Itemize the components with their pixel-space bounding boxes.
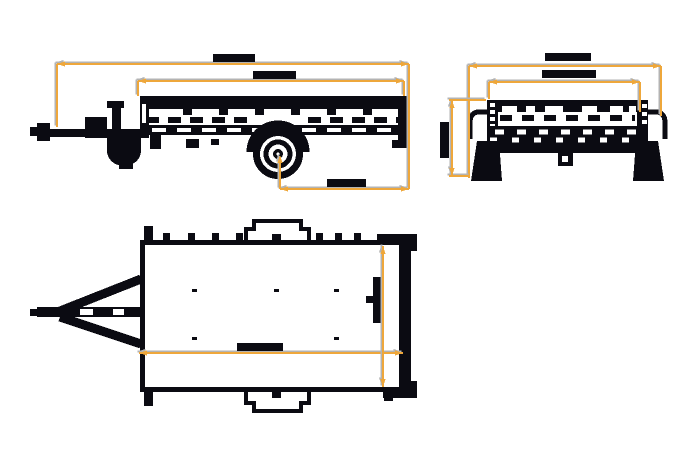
drawing-canvas[interactable] [0, 0, 700, 467]
dim-side-bed-length[interactable] [137, 71, 405, 96]
dim-front-overall-width-label-blob [545, 53, 591, 61]
dim-front-box-width-label-blob [542, 70, 596, 78]
side-stake-tab [291, 109, 300, 115]
top-inner-bar [373, 277, 381, 323]
front-pocket-hole [642, 104, 647, 108]
top-corner-tab [144, 226, 153, 240]
front-left-fender [470, 112, 488, 139]
front-rail-notch [629, 106, 636, 112]
front-jockey-wheel [440, 122, 449, 158]
front-center-stub-hole [562, 156, 568, 162]
top-inner-tick [366, 296, 373, 303]
front-rail-notch [502, 106, 517, 112]
side-stake-tab [255, 109, 264, 115]
front-right-wheel [633, 141, 664, 181]
front-pocket-hole [490, 117, 495, 121]
front-rail-notch [582, 106, 597, 112]
top-corner-nub [405, 381, 417, 398]
side-front-wall-slot [142, 104, 146, 123]
top-stake-tab [188, 233, 195, 240]
dim-side-bed-length-label-blob [253, 71, 296, 79]
side-support-leg [211, 139, 219, 145]
side-stake-tab [183, 109, 192, 115]
top-fender-notch [272, 392, 281, 398]
side-stake-tab [327, 109, 336, 115]
front-rail-notch [526, 106, 535, 112]
front-right-fender [647, 112, 665, 139]
top-corner-nub [407, 234, 417, 251]
top-stake-tab [163, 233, 170, 240]
top-floor-mark [192, 289, 197, 292]
top-stake-tab [316, 233, 323, 240]
front-rail-notch [545, 106, 563, 112]
side-top-rail [140, 96, 410, 109]
side-stake-tab [363, 109, 372, 115]
top-rear-tab [384, 392, 393, 401]
dim-side-overall-length-label-blob [213, 54, 255, 62]
top-stake-tab [354, 233, 361, 240]
front-pocket-hole [490, 103, 495, 107]
top-rear-edge [140, 387, 413, 392]
top-stake-tab [212, 233, 219, 240]
side-support-leg [186, 139, 199, 148]
side-jockey-wheel [107, 136, 141, 166]
front-left-wheel [471, 141, 502, 181]
top-left-edge [140, 240, 145, 392]
top-view[interactable] [30, 221, 417, 411]
top-floor-mark [334, 289, 339, 292]
top-drawbar-gap [113, 309, 124, 315]
side-view[interactable] [30, 96, 410, 176]
side-stake-tab [219, 109, 228, 115]
front-pocket-hole [642, 112, 647, 116]
front-view[interactable] [440, 100, 665, 181]
top-front-edge [140, 240, 413, 245]
top-corner-tab [144, 392, 153, 406]
top-stake-tab [236, 233, 243, 240]
top-stake-tab [335, 233, 342, 240]
top-floor-mark [192, 337, 197, 340]
side-jockey-foot [119, 162, 133, 169]
front-pocket-hole [490, 110, 495, 114]
top-tongue-arm-lower [60, 317, 141, 344]
top-hitch-tip [30, 309, 38, 316]
front-pocket-hole [642, 120, 647, 124]
top-drawbar-gap [80, 309, 93, 315]
top-tailgate [399, 240, 411, 392]
dim-top-length[interactable] [138, 343, 404, 356]
top-floor-mark [334, 337, 339, 340]
dim-side-axle-to-rear-label-blob [327, 179, 366, 187]
dim-top-length-label-blob [237, 343, 283, 351]
top-tongue-arm-upper [60, 279, 141, 311]
front-rail-notch [610, 106, 623, 112]
side-support-leg [150, 135, 161, 149]
top-fender-notch [272, 234, 281, 240]
side-rear-post [398, 96, 408, 142]
trailer-blueprint [0, 0, 700, 467]
top-floor-mark [274, 289, 279, 292]
side-winch-post [85, 117, 107, 138]
side-jockey-post [112, 101, 121, 134]
side-hitch-tip [30, 127, 38, 136]
